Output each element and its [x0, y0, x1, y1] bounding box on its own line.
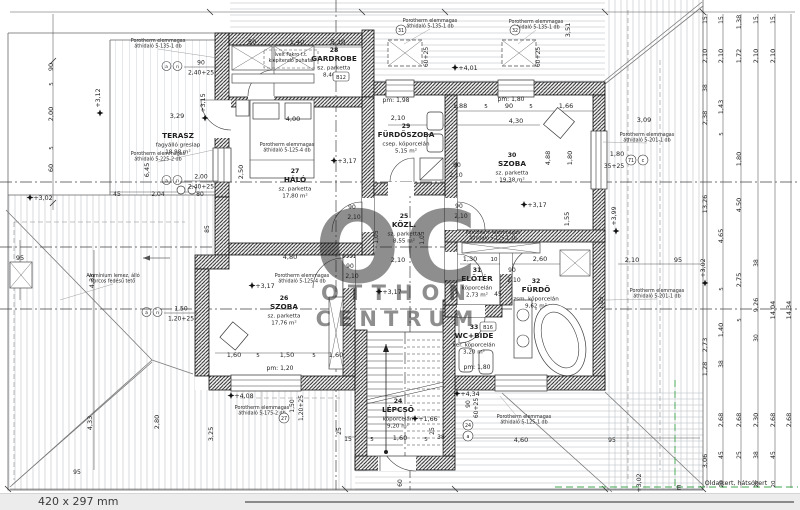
dim-label: 38 [437, 434, 445, 441]
level-label: +3,99 [611, 206, 618, 225]
dim-label: 2,10 [507, 277, 521, 284]
dim-label: 6,45 [143, 163, 151, 177]
level-label: +3,02 [33, 195, 52, 202]
dim-label: 2,50 [237, 165, 245, 179]
dim-label: 2,68 [769, 413, 777, 427]
room-area: 2,73 m² [466, 292, 488, 299]
opening-tag-letter: a [165, 179, 168, 184]
status-bar-divider [245, 501, 794, 503]
dim-label: 1,72 [735, 49, 743, 63]
level-label: +1,66 [418, 416, 437, 423]
dim-label: 38 [702, 84, 709, 92]
dim-label: 1,40 [290, 38, 304, 46]
window-south-szoba26 [231, 375, 301, 391]
circle-tag-label: 32 [512, 28, 518, 34]
bathtub [525, 297, 595, 383]
dim-label: 1,60 [393, 434, 407, 442]
chair-szoba26 [220, 322, 248, 350]
box-tag-label: B12 [336, 75, 346, 81]
room-name: SZOBA [270, 302, 298, 311]
dim-label: 2,80 [153, 415, 161, 429]
room-number: 31 [473, 267, 482, 274]
opening-dim-bottom: 2,40+25 [188, 70, 214, 77]
dim-label: 25 [429, 427, 436, 435]
box-tag-label: B16 [483, 325, 493, 331]
dim-label: 2,10 [769, 49, 777, 63]
note-box-text: Ívelt Fakro t.t. [274, 51, 307, 58]
paper-format-label: 420 x 297 mm [38, 495, 118, 508]
dim-label: 14,34 [785, 301, 793, 320]
dim-label: 1,30 [463, 255, 477, 263]
floorplan-drawing: OC OTTHON CENTRUM 501,405,1060+2560+253,… [0, 0, 800, 494]
terrace-planter [177, 186, 185, 194]
level-label: +4,34 [460, 391, 479, 398]
annotation-text: Porotherm elemmagas [630, 288, 685, 294]
room-number: 27 [291, 168, 300, 175]
dim-label: 5 [312, 353, 316, 359]
circle-tag-label: 27 [281, 416, 287, 422]
dim-label: 38 [753, 451, 760, 459]
room-finish: zsm. köporcelán [513, 296, 559, 303]
annotation-text: áthidaló 5-225-2 db [134, 156, 181, 163]
annotation-text: Porotherm elemmagas [275, 273, 330, 279]
annotation-text: Alumínium lemez, álló [86, 272, 139, 279]
dim-label: 5 [737, 318, 743, 322]
opening-dim-top: 1,50 [174, 306, 188, 313]
dim-label: 90 [348, 204, 356, 211]
level-label: +3,17 [255, 283, 274, 290]
dim-label: 3,09 [637, 116, 651, 124]
dim-label: pm: 1,80 [464, 364, 491, 371]
room-area: 8,55 m² [393, 238, 415, 245]
opening-tag-letter: n [176, 179, 179, 184]
dim-label: 45 [494, 291, 502, 298]
dim-label: 50 [248, 38, 256, 46]
dim-label: 38 [718, 360, 725, 368]
dim-label: 3,29 [170, 112, 184, 120]
note-box-text: kiépítendő puhafal [269, 57, 314, 64]
dim-label: 1,05 [373, 230, 380, 244]
sink-furdoszoba [427, 112, 443, 130]
room-name: LÉPCSŐ [382, 405, 414, 414]
dim-label: 1,60 [227, 351, 241, 359]
dim-label: 15 [718, 16, 725, 24]
shower-furdo [560, 250, 590, 276]
floorplan-page: OC OTTHON CENTRUM 501,405,1060+2560+253,… [0, 0, 800, 510]
room-area: 5,15 m² [395, 148, 417, 155]
dim-label: 15 [753, 16, 760, 24]
dim-label: 38 [753, 259, 760, 267]
annotation-text: Porotherm elemmagas [466, 230, 521, 236]
room-finish: sz. parketta [496, 171, 529, 177]
circle-tag-label: a [467, 435, 470, 440]
dim-label: pm: 1,20 [267, 365, 294, 372]
level-label: +3,17 [382, 289, 401, 296]
dim-label: 5 [49, 146, 55, 150]
dim-label: 90 [455, 203, 463, 210]
dim-label: 45 [113, 191, 121, 198]
annotation-text: áthidaló 5-125-1 db [469, 235, 516, 242]
dim-label: 3,25 [207, 427, 215, 441]
dim-label: 2,68 [735, 413, 743, 427]
annotation-text: áthidaló 5-125-4 db [278, 278, 325, 285]
room-name: SZOBA [498, 159, 526, 168]
dim-label: 4,65 [717, 229, 725, 243]
dim-label: 4,60 [514, 436, 528, 444]
dim-label: 2,10 [391, 256, 405, 264]
level-label: +3,17 [337, 158, 356, 165]
room-name: KÖZL. [392, 220, 416, 229]
dim-label: 2,38 [701, 111, 709, 125]
room-area: 9,62 m² [525, 303, 547, 310]
level-label: +4,08 [234, 393, 253, 400]
dim-label: 1,50 [289, 399, 296, 413]
dim-label: 2,10 [625, 256, 639, 264]
dim-label: 1,28 [701, 362, 709, 376]
circle-tag-label: 24 [465, 423, 471, 429]
opening-tag-letter: n [176, 65, 179, 70]
dim-label: 1,80 [566, 151, 574, 165]
dim-label: 60+25 [535, 47, 542, 67]
level-label: +3,17 [527, 202, 546, 209]
dim-label: 90 [47, 63, 55, 71]
dim-label: 2,10 [391, 114, 405, 122]
dim-label: 3,06 [701, 454, 709, 468]
window-north-1 [386, 80, 414, 97]
circle-tag-label: c [642, 159, 645, 164]
dim-label: 5 [49, 82, 55, 86]
dim-label: 95 [16, 254, 24, 262]
room-name: FÜRDŐSZOBA [378, 130, 435, 139]
dim-label: 4,88 [544, 151, 552, 165]
annotation-text: Porotherm elemmagas [131, 38, 186, 44]
dim-label: 2,10 [752, 49, 760, 63]
room-finish: köporcelán [383, 416, 414, 423]
dim-label: 30 [753, 334, 760, 342]
room-finish: sz. parketta [318, 66, 351, 72]
dim-label: 2,68 [717, 413, 725, 427]
dim-label: 35+25 [604, 163, 624, 170]
dim-label: 1,55 [563, 212, 571, 226]
dim-label: 95 [608, 437, 616, 444]
room-number: 25 [400, 213, 409, 220]
annotation-text: áthidaló 5-135-1 db [406, 23, 453, 30]
opening-dim-bottom: 2,40+25 [188, 184, 214, 191]
dim-label: 5 [370, 437, 374, 443]
dim-label: 5 [484, 104, 488, 110]
dim-label: 2,10 [449, 172, 463, 179]
room-number: 24 [394, 398, 403, 405]
room-number: 26 [280, 295, 289, 302]
dim-label: 4,33 [86, 416, 94, 430]
dim-label: 4,30 [509, 117, 523, 125]
room-number: 32 [532, 278, 541, 285]
dim-label: 15 [344, 436, 352, 443]
window-east [591, 131, 607, 189]
level-label: +4,01 [458, 65, 477, 72]
dim-label: 2,73 [701, 338, 709, 352]
dim-label: 2,10 [717, 49, 725, 63]
dim-label: 1,88 [453, 102, 467, 110]
dim-label: 5 [719, 132, 725, 136]
room-name: ELŐTÉR [461, 274, 493, 283]
dim-label: 85 [204, 225, 211, 233]
dim-label: 5 [424, 437, 428, 443]
window-north-2 [498, 80, 534, 97]
gardrobe-closets [232, 46, 314, 83]
dim-label: 1,50 [280, 351, 294, 359]
dim-label: 1,05 [598, 296, 605, 310]
room-area: 9,20 m² [387, 423, 409, 430]
chimney [10, 262, 32, 288]
room-finish: sz. parketta [388, 232, 421, 238]
watermark-line2: CENTRUM [316, 307, 481, 331]
dim-label: 1,66 [559, 102, 573, 110]
dim-label: 14,04 [769, 301, 777, 320]
dim-label: 5 [529, 104, 533, 110]
dim-label: 95 [73, 469, 81, 476]
dim-label: 90 [453, 162, 461, 169]
dim-label: 60+25 [423, 47, 430, 67]
dim-label: 2,00 [47, 107, 55, 121]
opening-tag-letter: n [156, 311, 159, 316]
dim-label: 2,30 [752, 413, 760, 427]
room-area: 17,80 m² [282, 193, 307, 200]
dim-label: 80 [196, 191, 204, 198]
dim-label: 2,04 [151, 191, 165, 198]
room-finish: sz. parketta [279, 187, 312, 193]
room-area: 19,38 m² [499, 177, 524, 184]
annotation-text: áthidaló 5-125-1 db [500, 419, 547, 426]
room-number: 28 [330, 47, 339, 54]
room-name: WC+BIDE [455, 331, 494, 340]
room-number: 33 [470, 324, 479, 331]
opening-dim-top: 2,00 [194, 174, 208, 181]
dim-label: 20 [771, 480, 777, 487]
room-finish: ker. köporcelán [453, 342, 496, 349]
room-area: 3,20 m² [463, 349, 485, 356]
dim-label: 9,26 [752, 298, 760, 312]
level-label: +3,15 [200, 93, 207, 112]
dim-label: 1,80 [735, 152, 743, 166]
site-boundary-label: Oldalkert, hátsókert [705, 479, 768, 487]
annotation-text: Porotherm elemmagas [509, 19, 564, 25]
opening-tag-letter: a [145, 311, 148, 316]
opening-dim-top: 90 [197, 60, 205, 67]
room-name: HÁLÓ [284, 175, 306, 184]
room-finish: köporcelán [462, 285, 493, 292]
level-marker-icon [97, 110, 104, 117]
dim-label: 45 [718, 451, 725, 459]
dim-label: 4,80 [283, 253, 297, 261]
level-label: +3,02 [700, 258, 707, 277]
dim-label: 4,50 [735, 198, 743, 212]
level-label: +3,12 [95, 88, 102, 107]
dim-label: 1,43 [717, 100, 725, 114]
annotation-text: áthidaló 5-135-1 db [134, 43, 181, 50]
room-finish: sz. parketta [268, 314, 301, 320]
room-number: 29 [402, 123, 411, 130]
dim-label: 90 [508, 267, 516, 274]
dim-label: 25 [736, 451, 743, 459]
status-bar: 420 x 297 mm [0, 493, 800, 510]
dim-label: 60 [47, 164, 55, 172]
room-finish: fagyálló greslap [156, 142, 201, 149]
dim-label: 2,60 [533, 255, 547, 263]
dim-label: 1,60 [329, 351, 343, 359]
dim-label: 90 [346, 263, 354, 270]
room-name: FÜRDŐ [522, 285, 551, 294]
room-finish: csep. köporcelán [382, 141, 430, 148]
dim-label: 25 [336, 427, 343, 435]
dim-label: 3,51 [564, 23, 572, 37]
annotation-text: áthidaló 5-201-1 db [633, 293, 680, 300]
annotation-text: korcos fedésű tető [91, 278, 135, 285]
room-name: TERASZ [162, 131, 194, 140]
chair-szoba30 [544, 108, 575, 139]
dim-label: 1,38 [735, 15, 743, 29]
dim-label: 2,10 [701, 49, 709, 63]
dim-label: 2,10 [347, 214, 361, 221]
dim-label: 1,80 [610, 150, 624, 158]
dim-label: 2,75 [735, 273, 743, 287]
dim-label: pm: 1,98 [383, 97, 410, 104]
dim-label: 45 [770, 451, 777, 459]
dim-label: 5 [256, 353, 260, 359]
dim-label: 2,10 [345, 273, 359, 280]
dim-label: 2,68 [785, 413, 793, 427]
dim-label: 15 [702, 16, 709, 24]
annotation-text: Porotherm elemmagas [131, 151, 186, 157]
annotation-text: Porotherm elemmagas [235, 405, 290, 411]
room-number: 30 [508, 152, 517, 159]
site-marker: E [677, 484, 681, 492]
annotation-text: Porotherm elemmagas [260, 142, 315, 148]
dim-label: 13,26 [701, 195, 709, 214]
dim-label: 10 [491, 257, 498, 263]
circle-tag-label: 71 [628, 158, 634, 164]
opening-dim-bottom: 1,20+25 [168, 316, 194, 323]
dim-label: 1,20+25 [298, 395, 305, 421]
window-south-furdo [495, 375, 547, 391]
opening-tag-letter: a [165, 65, 168, 70]
dim-label: 60+25 [473, 398, 480, 418]
dim-label: 1,40 [717, 323, 725, 337]
dim-label: 2,10 [454, 213, 468, 220]
dim-label: 90 [465, 400, 472, 408]
dim-label: 90 [505, 102, 513, 110]
circle-tag-label: 31 [398, 28, 404, 34]
annotation-text: Porotherm elemmagas [403, 18, 458, 24]
annotation-text: áthidaló 5-125-4 db [263, 147, 310, 154]
annotation-text: Porotherm elemmagas [620, 132, 675, 138]
room-name: GARDROBE [311, 54, 357, 63]
annotation-text: Porotherm elemmagas [497, 414, 552, 420]
dim-label: 5 [719, 287, 725, 291]
nightstand [236, 100, 249, 116]
dim-label: 5,10 [331, 38, 345, 46]
dim-label: 95 [674, 256, 682, 264]
dim-label: 60 [397, 479, 404, 487]
dim-label: 4,00 [286, 115, 300, 123]
window-terrace [213, 148, 231, 182]
dim-label: 15 [770, 16, 777, 24]
level-label: +3,02 [636, 473, 643, 492]
room-area: 17,76 m² [271, 320, 296, 327]
